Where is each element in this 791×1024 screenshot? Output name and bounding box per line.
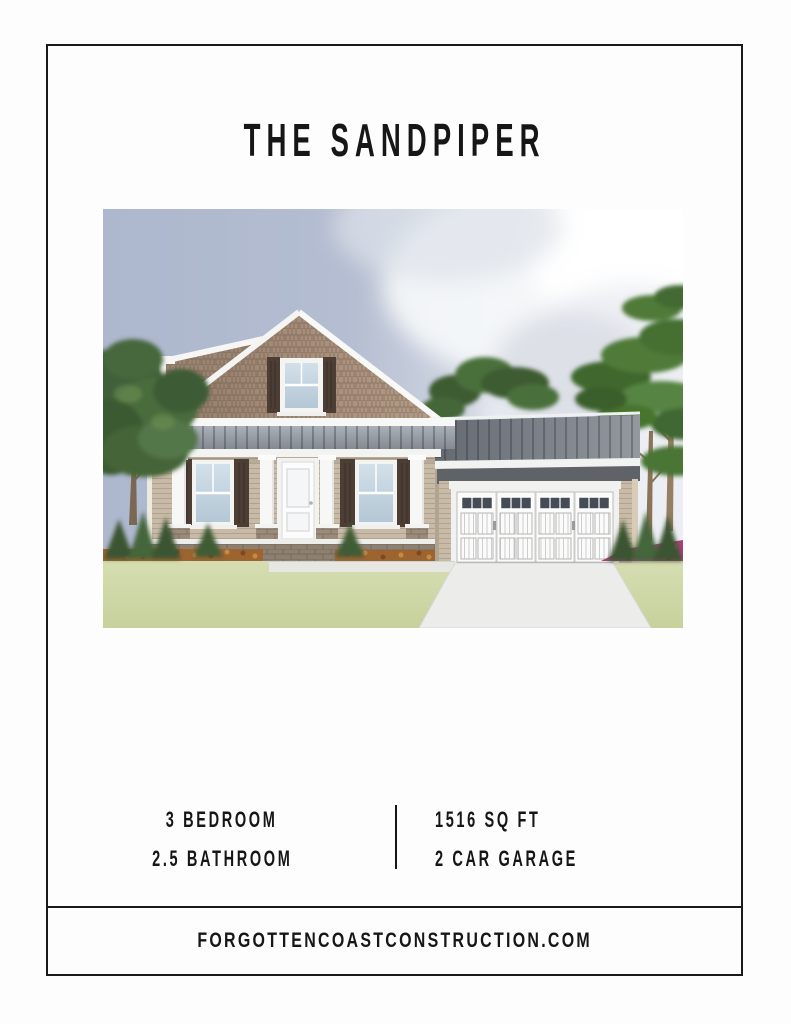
- hero-image: [103, 209, 683, 628]
- spec-sqft: 1516 SQ FT: [435, 800, 741, 839]
- house-rendering: [103, 209, 683, 628]
- flyer-frame: THE SANDPIPER: [46, 44, 743, 976]
- spec-divider: [395, 805, 397, 869]
- page-title-text: THE SANDPIPER: [244, 117, 546, 163]
- spec-right-column: 1516 SQ FT 2 CAR GARAGE: [396, 800, 741, 878]
- spec-garage: 2 CAR GARAGE: [435, 839, 741, 878]
- spec-left-column: 3 BEDROOM 2.5 BATHROOM: [48, 800, 396, 878]
- page-title: THE SANDPIPER: [48, 117, 741, 163]
- footer-website: FORGOTTENCOASTCONSTRUCTION.COM: [197, 929, 592, 953]
- spec-bedrooms: 3 BEDROOM: [48, 800, 396, 839]
- spec-bathrooms: 2.5 BATHROOM: [48, 839, 396, 878]
- garage-door: [451, 487, 619, 563]
- garage: [429, 413, 640, 563]
- footer: FORGOTTENCOASTCONSTRUCTION.COM: [48, 908, 741, 974]
- spec-section: 3 BEDROOM 2.5 BATHROOM 1516 SQ FT 2 CAR …: [48, 800, 741, 882]
